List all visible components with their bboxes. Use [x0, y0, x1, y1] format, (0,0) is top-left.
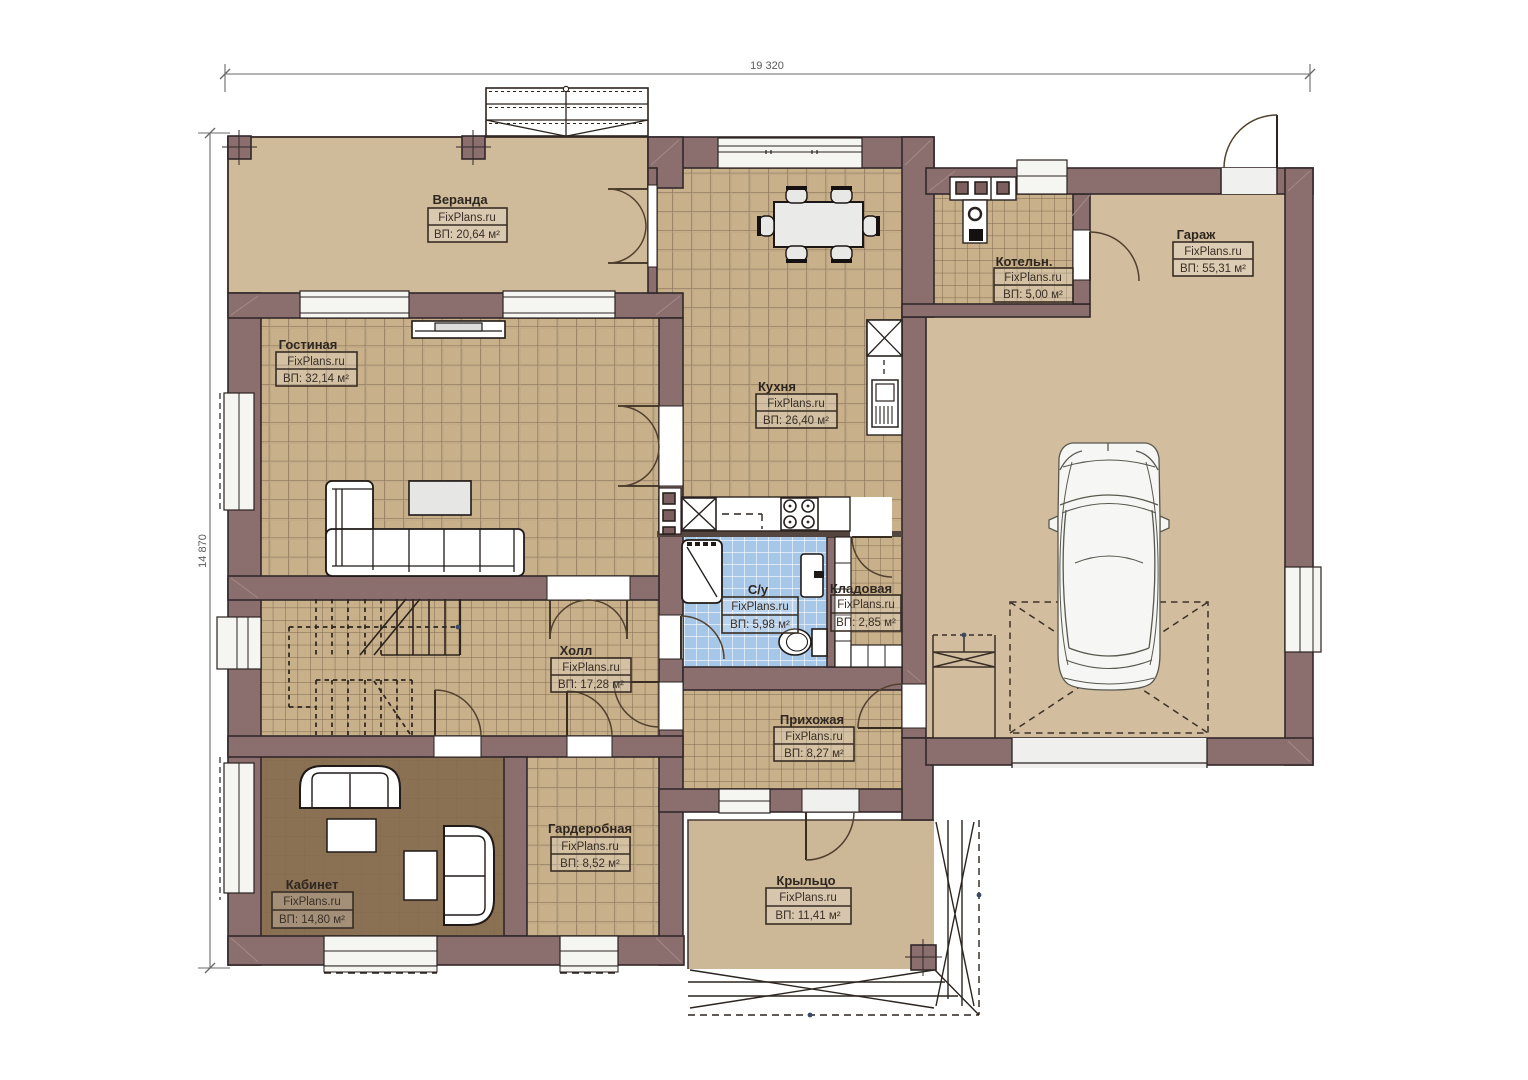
svg-text:Гардеробная: Гардеробная [548, 821, 632, 836]
svg-text:FixPlans.ru: FixPlans.ru [438, 212, 496, 224]
svg-text:ВП: 20,64 м²: ВП: 20,64 м² [434, 229, 500, 241]
svg-text:ВП: 8,27 м²: ВП: 8,27 м² [784, 748, 844, 760]
svg-text:Гостиная: Гостиная [279, 337, 338, 352]
svg-text:ВП: 55,31 м²: ВП: 55,31 м² [1180, 263, 1246, 275]
svg-text:ВП: 8,52 м²: ВП: 8,52 м² [560, 858, 620, 870]
svg-text:FixPlans.ru: FixPlans.ru [731, 601, 789, 613]
svg-text:14 870: 14 870 [197, 534, 209, 568]
svg-text:Холл: Холл [560, 643, 593, 658]
svg-text:FixPlans.ru: FixPlans.ru [562, 662, 620, 674]
svg-text:FixPlans.ru: FixPlans.ru [1004, 272, 1062, 284]
svg-text:FixPlans.ru: FixPlans.ru [561, 841, 619, 853]
svg-text:FixPlans.ru: FixPlans.ru [1184, 246, 1242, 258]
svg-text:ВП: 2,85 м²: ВП: 2,85 м² [836, 617, 896, 629]
svg-text:FixPlans.ru: FixPlans.ru [283, 896, 341, 908]
svg-text:FixPlans.ru: FixPlans.ru [767, 398, 825, 410]
svg-text:FixPlans.ru: FixPlans.ru [779, 892, 837, 904]
svg-text:Веранда: Веранда [432, 192, 488, 207]
svg-text:FixPlans.ru: FixPlans.ru [837, 599, 895, 611]
svg-text:ВП: 5,98 м²: ВП: 5,98 м² [730, 619, 790, 631]
svg-text:FixPlans.ru: FixPlans.ru [287, 356, 345, 368]
svg-text:Кухня: Кухня [758, 379, 796, 394]
svg-text:FixPlans.ru: FixPlans.ru [785, 731, 843, 743]
svg-text:Кладовая: Кладовая [830, 581, 892, 596]
svg-text:ВП: 17,28 м²: ВП: 17,28 м² [558, 679, 624, 691]
svg-text:ВП: 5,00 м²: ВП: 5,00 м² [1003, 289, 1063, 301]
svg-text:ВП: 26,40 м²: ВП: 26,40 м² [763, 415, 829, 427]
svg-text:Прихожая: Прихожая [780, 712, 844, 727]
svg-text:С/у: С/у [748, 582, 769, 597]
svg-text:19 320: 19 320 [750, 60, 784, 72]
svg-text:Котельн.: Котельн. [996, 254, 1053, 269]
svg-text:Крыльцо: Крыльцо [776, 873, 835, 888]
svg-text:Кабинет: Кабинет [286, 877, 339, 892]
svg-text:ВП: 11,41 м²: ВП: 11,41 м² [775, 910, 840, 922]
svg-text:ВП: 14,80 м²: ВП: 14,80 м² [279, 914, 345, 926]
svg-text:ВП: 32,14 м²: ВП: 32,14 м² [283, 373, 349, 385]
svg-text:Гараж: Гараж [1177, 227, 1217, 242]
